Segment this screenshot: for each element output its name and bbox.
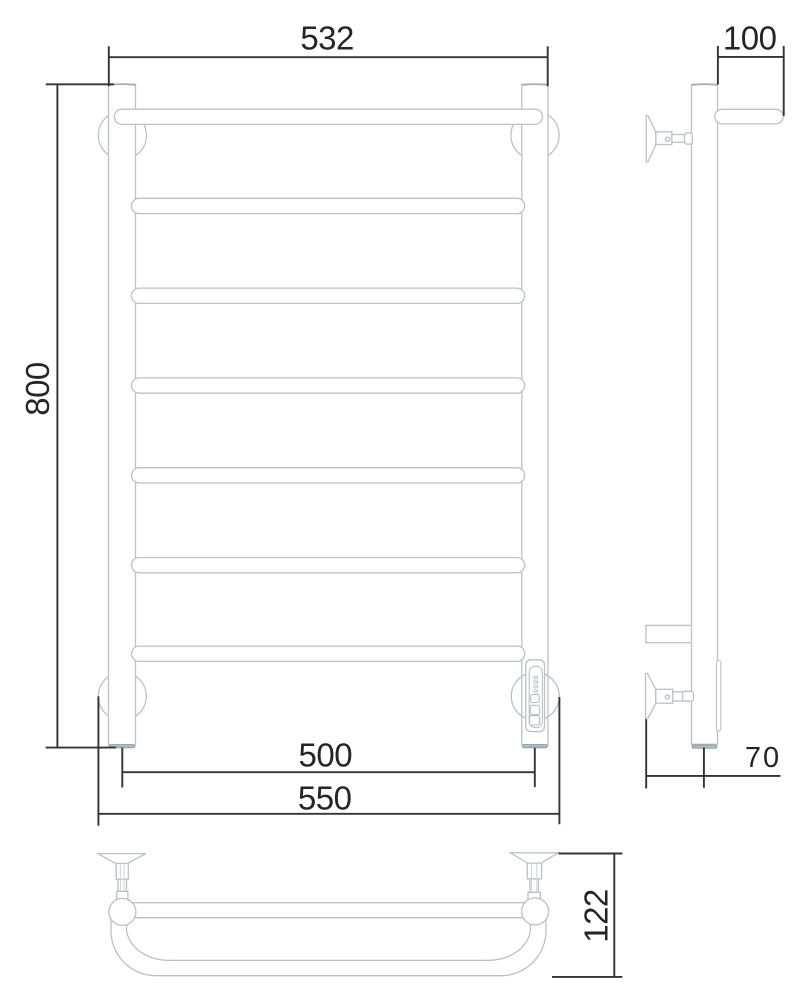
svg-text:532: 532 <box>300 20 354 57</box>
svg-text:550: 550 <box>298 779 352 816</box>
svg-text:122: 122 <box>578 889 615 943</box>
svg-text:800: 800 <box>19 362 56 416</box>
svg-text:70: 70 <box>745 742 781 774</box>
svg-text:500: 500 <box>299 737 353 774</box>
svg-text:100: 100 <box>723 20 777 57</box>
